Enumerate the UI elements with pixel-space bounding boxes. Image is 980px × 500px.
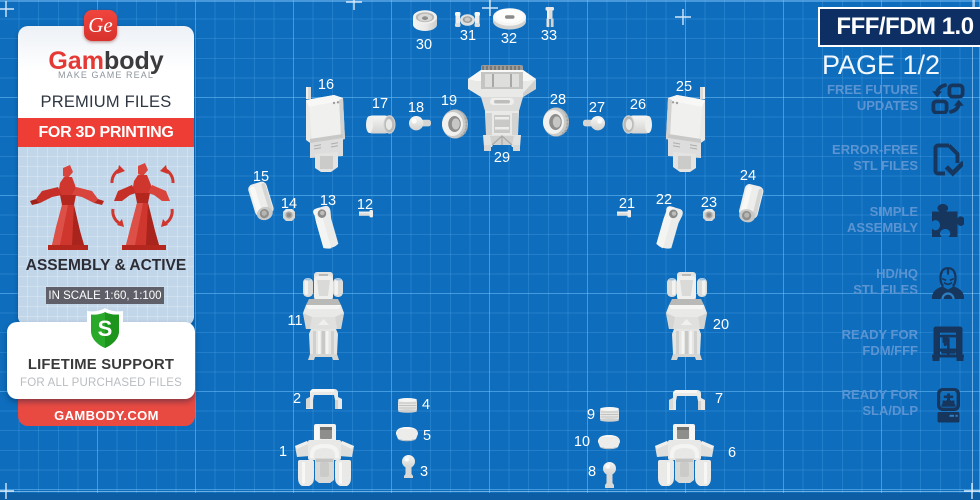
svg-text:26: 26: [630, 97, 646, 113]
svg-text:14: 14: [281, 196, 297, 212]
svg-text:18: 18: [408, 100, 424, 116]
svg-text:19: 19: [441, 93, 457, 109]
svg-text:32: 32: [501, 31, 517, 47]
svg-text:25: 25: [676, 79, 692, 95]
svg-text:22: 22: [656, 192, 672, 208]
svg-text:1: 1: [279, 444, 287, 460]
svg-text:24: 24: [740, 168, 756, 184]
svg-text:23: 23: [701, 195, 717, 211]
svg-text:29: 29: [494, 150, 510, 166]
svg-text:20: 20: [713, 317, 729, 333]
svg-text:4: 4: [422, 397, 430, 413]
svg-text:28: 28: [550, 92, 566, 108]
svg-text:3: 3: [420, 464, 428, 480]
svg-text:21: 21: [619, 196, 635, 212]
svg-text:9: 9: [587, 407, 595, 423]
svg-text:8: 8: [588, 464, 596, 480]
svg-text:30: 30: [416, 37, 432, 53]
svg-text:7: 7: [715, 391, 723, 407]
svg-text:5: 5: [423, 428, 431, 444]
svg-text:16: 16: [318, 77, 334, 93]
svg-text:10: 10: [574, 434, 590, 450]
svg-text:2: 2: [293, 391, 301, 407]
svg-text:11: 11: [287, 313, 302, 329]
svg-text:27: 27: [589, 100, 605, 116]
svg-text:6: 6: [728, 445, 736, 461]
svg-text:13: 13: [320, 193, 336, 209]
svg-text:31: 31: [460, 28, 476, 44]
svg-text:17: 17: [372, 96, 388, 112]
svg-text:15: 15: [253, 169, 269, 185]
svg-text:12: 12: [357, 197, 373, 213]
svg-text:33: 33: [541, 28, 557, 44]
svg-text:S: S: [98, 316, 113, 341]
